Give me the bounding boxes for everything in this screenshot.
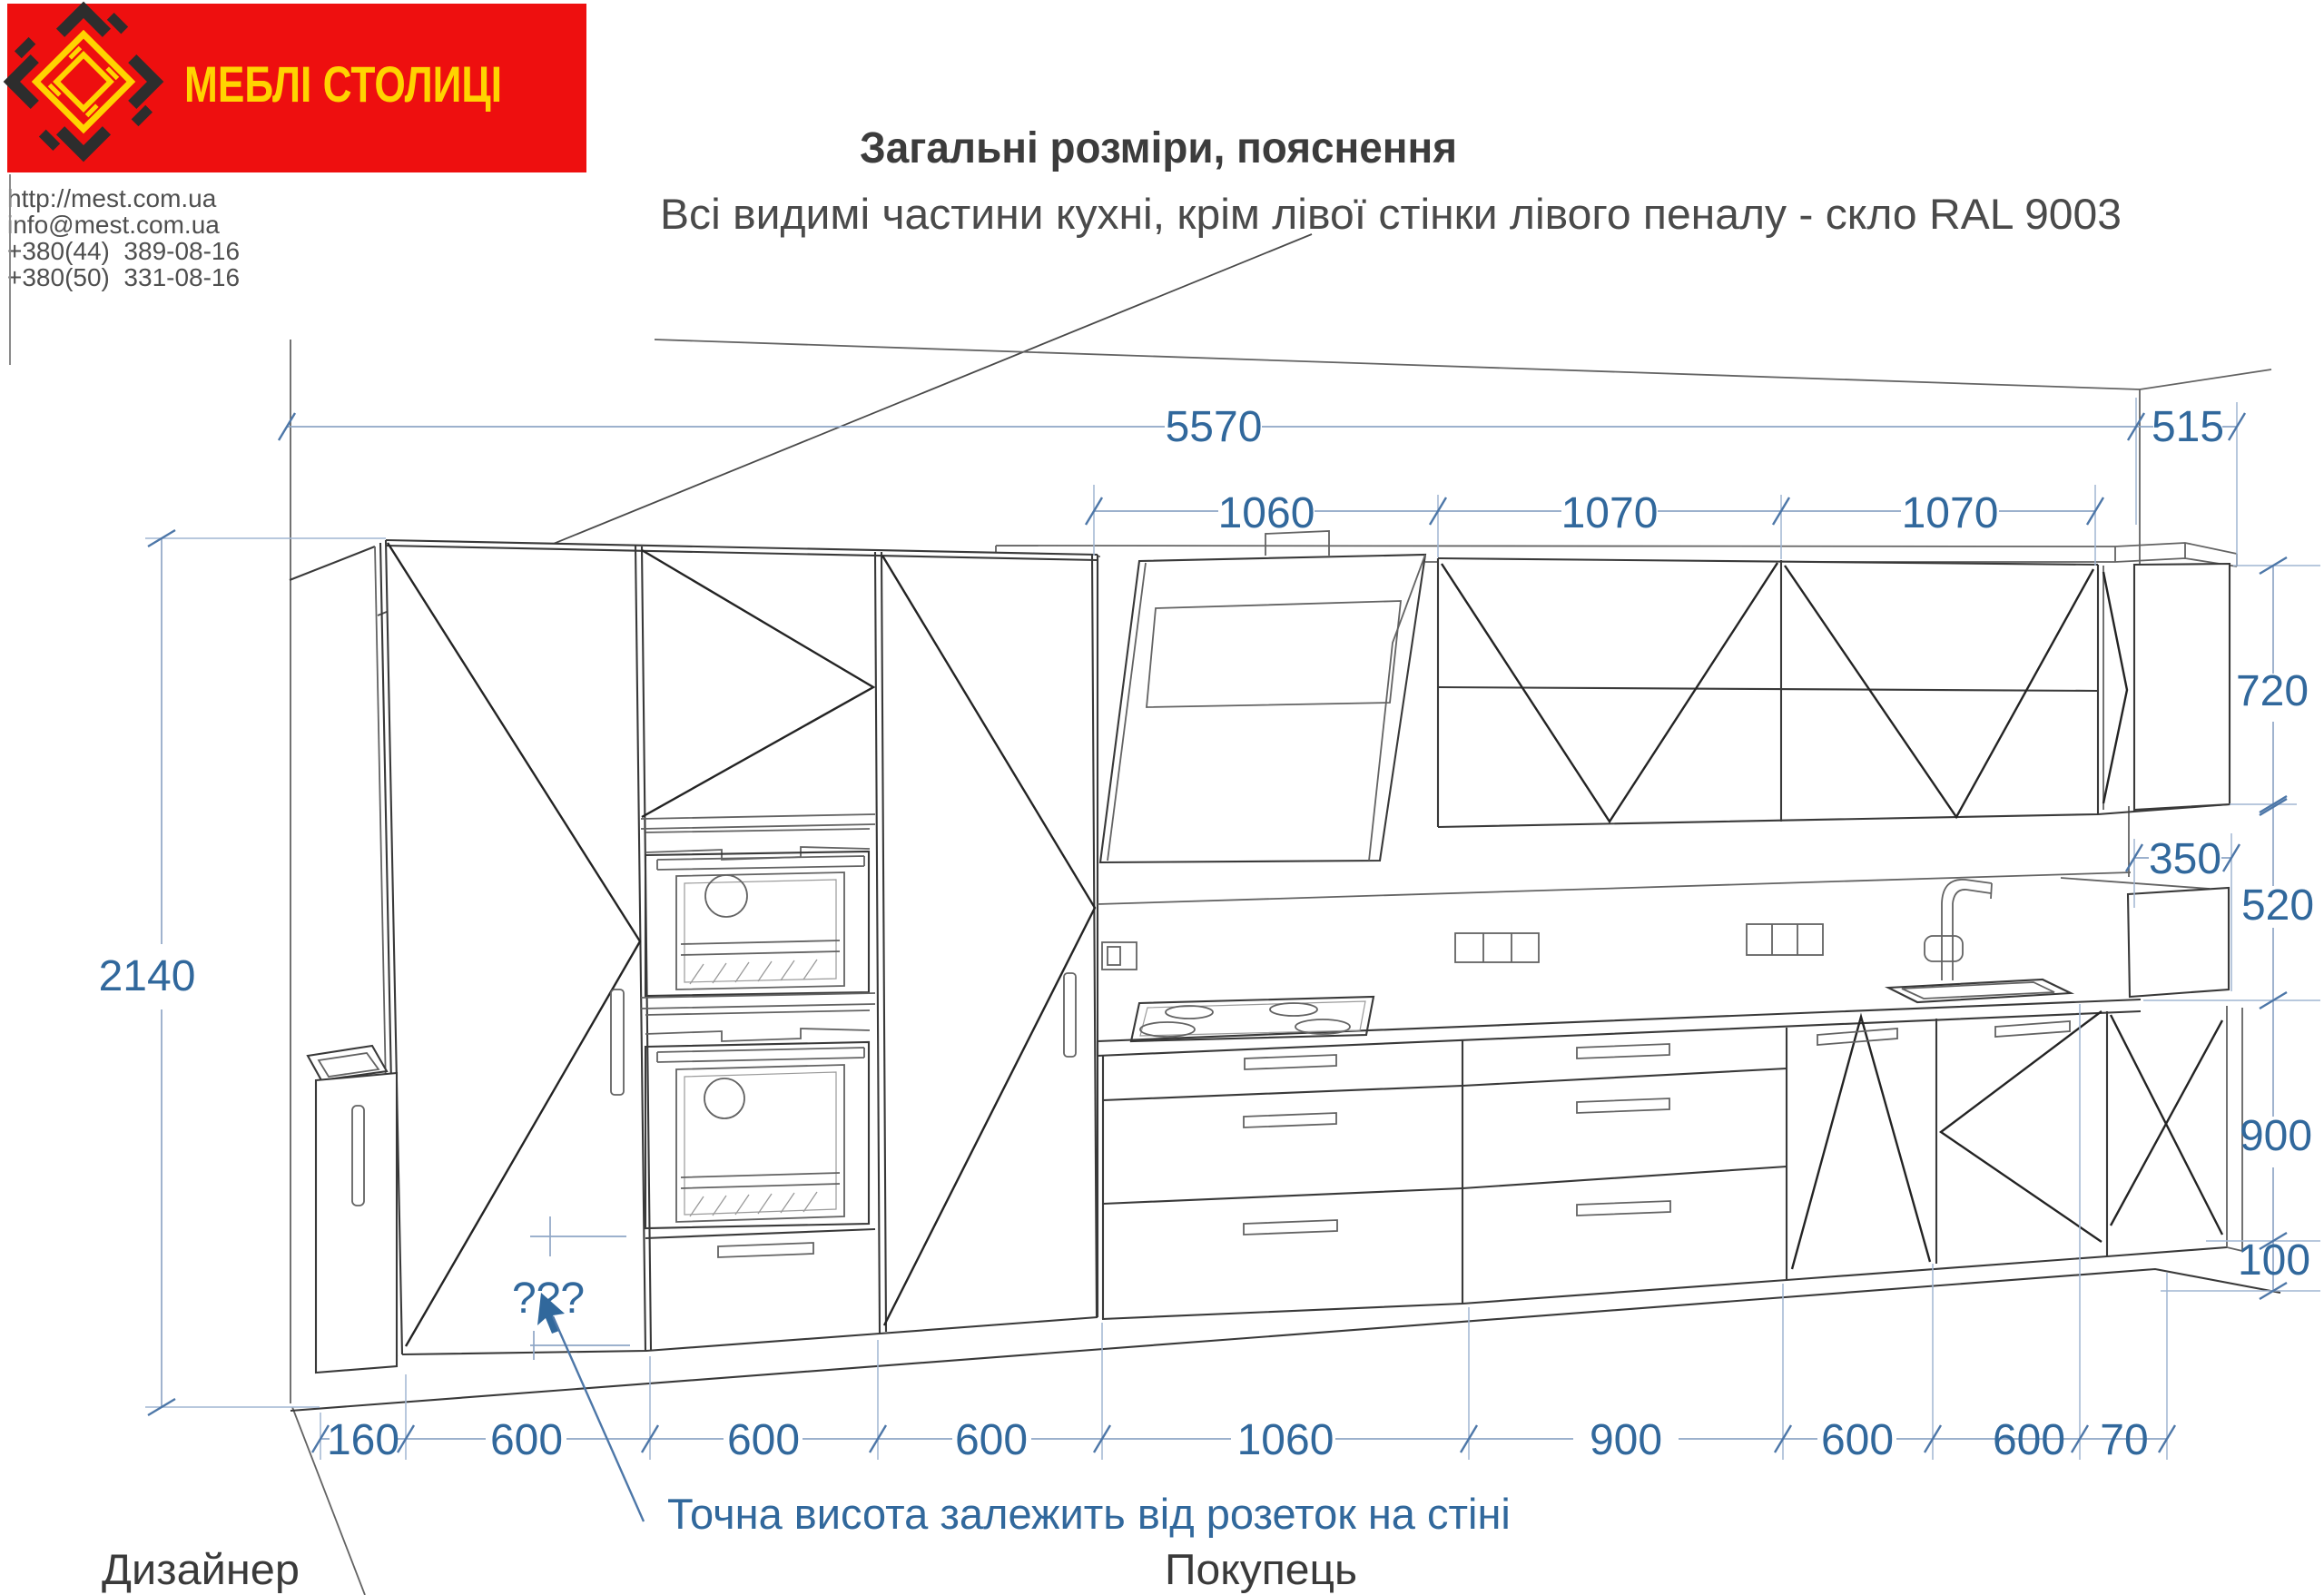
svg-text:Точна висота залежить від розе: Точна висота залежить від розеток на сті… xyxy=(667,1490,1511,1538)
svg-text:600: 600 xyxy=(1993,1416,2065,1464)
svg-text:МЕБЛІ СТОЛИЦІ: МЕБЛІ СТОЛИЦІ xyxy=(184,55,502,113)
svg-text:2140: 2140 xyxy=(99,952,196,1000)
svg-text:600: 600 xyxy=(1821,1416,1894,1464)
svg-text:Всі видимі частини кухні, крім: Всі видимі частини кухні, крім лівої сті… xyxy=(660,190,2122,238)
svg-text:520: 520 xyxy=(2241,881,2314,930)
svg-text:1070: 1070 xyxy=(1902,489,1999,537)
svg-text:720: 720 xyxy=(2236,667,2309,715)
svg-text:100: 100 xyxy=(2238,1236,2310,1285)
svg-text:515: 515 xyxy=(2152,403,2224,451)
svg-text:info@mest.com.ua: info@mest.com.ua xyxy=(7,211,220,239)
svg-text:5570: 5570 xyxy=(1166,403,1263,451)
svg-text:600: 600 xyxy=(955,1416,1028,1464)
svg-text:+380(44) 389-08-16: +380(44) 389-08-16 xyxy=(7,237,240,265)
svg-text:+380(50) 331-08-16: +380(50) 331-08-16 xyxy=(7,263,240,291)
svg-text:1070: 1070 xyxy=(1561,489,1659,537)
svg-text:1060: 1060 xyxy=(1218,489,1315,537)
svg-text:Загальні розміри, пояснення: Загальні розміри, пояснення xyxy=(860,124,1457,172)
svg-text:1060: 1060 xyxy=(1237,1416,1334,1464)
svg-text:Дизайнер: Дизайнер xyxy=(102,1545,300,1593)
svg-text:70: 70 xyxy=(2100,1416,2148,1464)
svg-text:900: 900 xyxy=(1590,1416,1662,1464)
svg-text:Покупець: Покупець xyxy=(1165,1545,1357,1593)
svg-text:350: 350 xyxy=(2149,835,2221,883)
svg-text:600: 600 xyxy=(727,1416,800,1464)
svg-text:http://mest.com.ua: http://mest.com.ua xyxy=(7,184,217,212)
svg-text:600: 600 xyxy=(490,1416,563,1464)
svg-text:160: 160 xyxy=(327,1416,399,1464)
svg-text:900: 900 xyxy=(2240,1112,2312,1160)
